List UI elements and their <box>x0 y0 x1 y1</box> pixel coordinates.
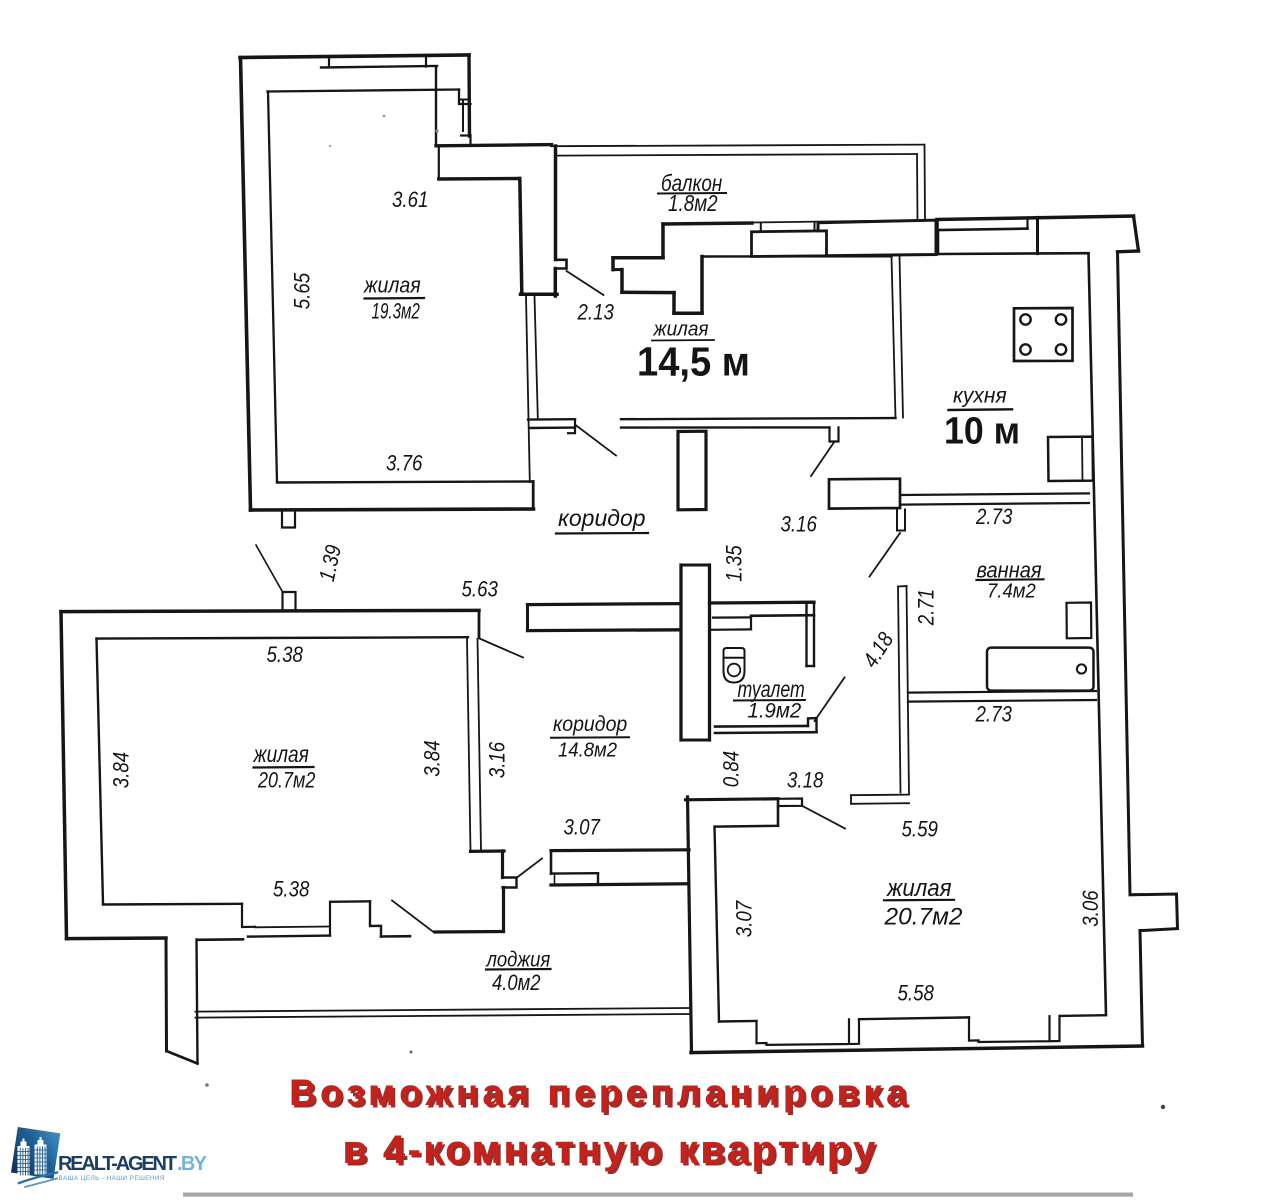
svg-text:3.84: 3.84 <box>110 752 134 788</box>
svg-text:0.84: 0.84 <box>720 751 744 787</box>
svg-text:3.18: 3.18 <box>787 769 824 793</box>
svg-text:14.8м2: 14.8м2 <box>558 739 617 762</box>
svg-text:жилая: жилая <box>253 742 309 767</box>
svg-text:3.61: 3.61 <box>392 189 428 213</box>
svg-text:3.84: 3.84 <box>421 740 445 776</box>
svg-text:10 м: 10 м <box>944 409 1020 451</box>
svg-text:5.38: 5.38 <box>267 644 304 668</box>
svg-text:5.38: 5.38 <box>273 878 310 902</box>
svg-text:2.13: 2.13 <box>577 301 615 325</box>
svg-text:14,5 м: 14,5 м <box>637 339 750 385</box>
svg-text:7.4м2: 7.4м2 <box>987 580 1036 603</box>
svg-text:3.07: 3.07 <box>733 900 757 937</box>
svg-text:жилая: жилая <box>886 874 952 901</box>
svg-text:REALT-AGENT: REALT-AGENT <box>58 1153 177 1175</box>
svg-text:кухня: кухня <box>953 385 1007 408</box>
svg-text:2.73: 2.73 <box>975 506 1013 530</box>
svg-text:3.16: 3.16 <box>781 513 818 537</box>
svg-text:19.3м2: 19.3м2 <box>372 300 421 324</box>
svg-text:3.76: 3.76 <box>386 452 423 476</box>
svg-text:ВАША ЦЕЛЬ - НАШИ РЕШЕНИЯ: ВАША ЦЕЛЬ - НАШИ РЕШЕНИЯ <box>59 1175 165 1182</box>
svg-text:1.39: 1.39 <box>316 543 347 584</box>
svg-text:5.59: 5.59 <box>902 818 938 842</box>
svg-text:4.0м2: 4.0м2 <box>492 970 541 995</box>
svg-text:2.71: 2.71 <box>915 589 939 626</box>
svg-text:3.16: 3.16 <box>486 741 510 778</box>
svg-text:жилая: жилая <box>653 318 710 341</box>
svg-text:1.35: 1.35 <box>723 545 747 582</box>
svg-text:3.06: 3.06 <box>1080 890 1104 927</box>
svg-text:5.58: 5.58 <box>898 982 935 1006</box>
svg-text:жилая: жилая <box>363 273 421 298</box>
svg-text:3.07: 3.07 <box>564 816 601 840</box>
svg-text:5.65: 5.65 <box>291 272 315 309</box>
svg-text:коридор: коридор <box>558 505 646 531</box>
svg-text:1.8м2: 1.8м2 <box>668 191 718 216</box>
svg-text:в 4-комнатную квартиру: в 4-комнатную квартиру <box>342 1128 877 1172</box>
svg-text:20.7м2: 20.7м2 <box>257 769 316 793</box>
svg-text:5.63: 5.63 <box>462 578 499 602</box>
svg-text:20.7м2: 20.7м2 <box>883 904 963 931</box>
svg-text:1.9м2: 1.9м2 <box>748 699 802 723</box>
svg-text:коридор: коридор <box>553 713 627 736</box>
svg-text:4.18: 4.18 <box>859 628 899 672</box>
svg-text:2.73: 2.73 <box>975 703 1013 727</box>
svg-text:Возможная перепланировка: Возможная перепланировка <box>289 1072 911 1113</box>
svg-text:.BY: .BY <box>177 1153 208 1175</box>
